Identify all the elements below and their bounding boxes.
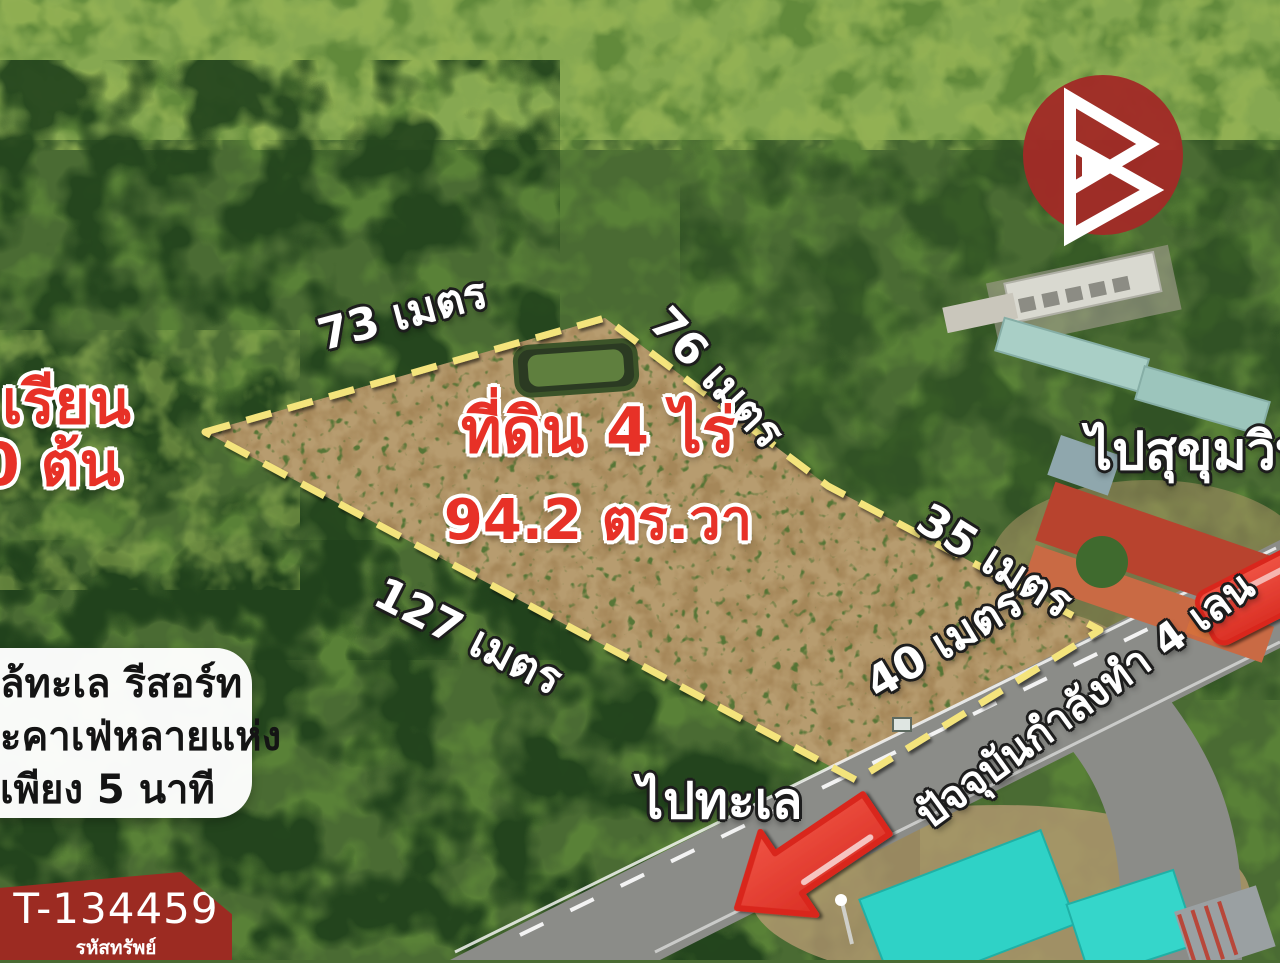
brand-logo-icon bbox=[1023, 75, 1183, 236]
direction-label-sukhumvit: ไปสุขุมวิท bbox=[1086, 420, 1280, 485]
pond bbox=[514, 340, 637, 396]
direction-label-sea: ไปทะเล bbox=[638, 770, 802, 833]
nearby-info-text: ล้ทะเล รีสอร์ท ะคาเฟ่หลายแห่ง เพียง 5 นา… bbox=[0, 658, 281, 816]
plot-area-title: ที่ดิน 4 ไร่ 94.2 ตร.วา bbox=[440, 392, 756, 556]
plot-size-rai: ที่ดิน 4 ไร่ bbox=[440, 392, 756, 470]
property-code-caption: รหัสทรัพย์ bbox=[0, 933, 232, 963]
info-line-resort: ล้ทะเล รีสอร์ท bbox=[0, 658, 281, 711]
property-code: T-134459 bbox=[0, 884, 232, 933]
left-red-text-line2: 0 ต้น bbox=[0, 428, 121, 503]
plot-size-sqwa: 94.2 ตร.วา bbox=[440, 486, 756, 556]
info-line-minutes: เพียง 5 นาที bbox=[0, 764, 281, 817]
info-line-cafes: ะคาเฟ่หลายแห่ง bbox=[0, 711, 281, 764]
